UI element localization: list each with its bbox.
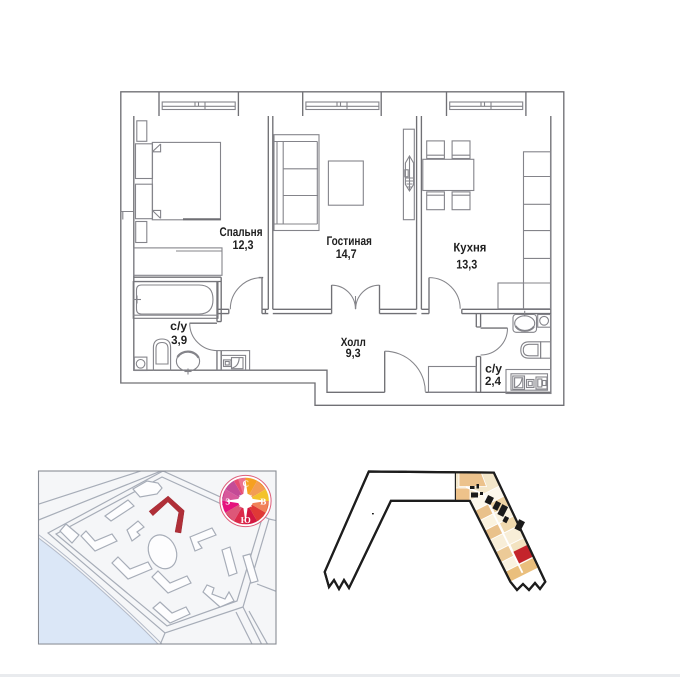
svg-text:2,4: 2,4: [485, 374, 501, 388]
svg-text:3,9: 3,9: [171, 333, 187, 347]
svg-text:с/у: с/у: [170, 319, 187, 333]
svg-text:Ю: Ю: [241, 515, 251, 525]
svg-text:13,3: 13,3: [456, 257, 477, 271]
svg-text:С: С: [242, 479, 249, 489]
svg-text:14,7: 14,7: [336, 247, 357, 261]
svg-text:Гостиная: Гостиная: [326, 234, 372, 248]
svg-text:Кухня: Кухня: [453, 240, 486, 254]
svg-text:З: З: [225, 497, 230, 507]
svg-text:Спальня: Спальня: [220, 225, 263, 239]
svg-text:В: В: [260, 497, 266, 507]
svg-text:9,3: 9,3: [346, 346, 361, 360]
svg-text:12,3: 12,3: [233, 238, 254, 252]
